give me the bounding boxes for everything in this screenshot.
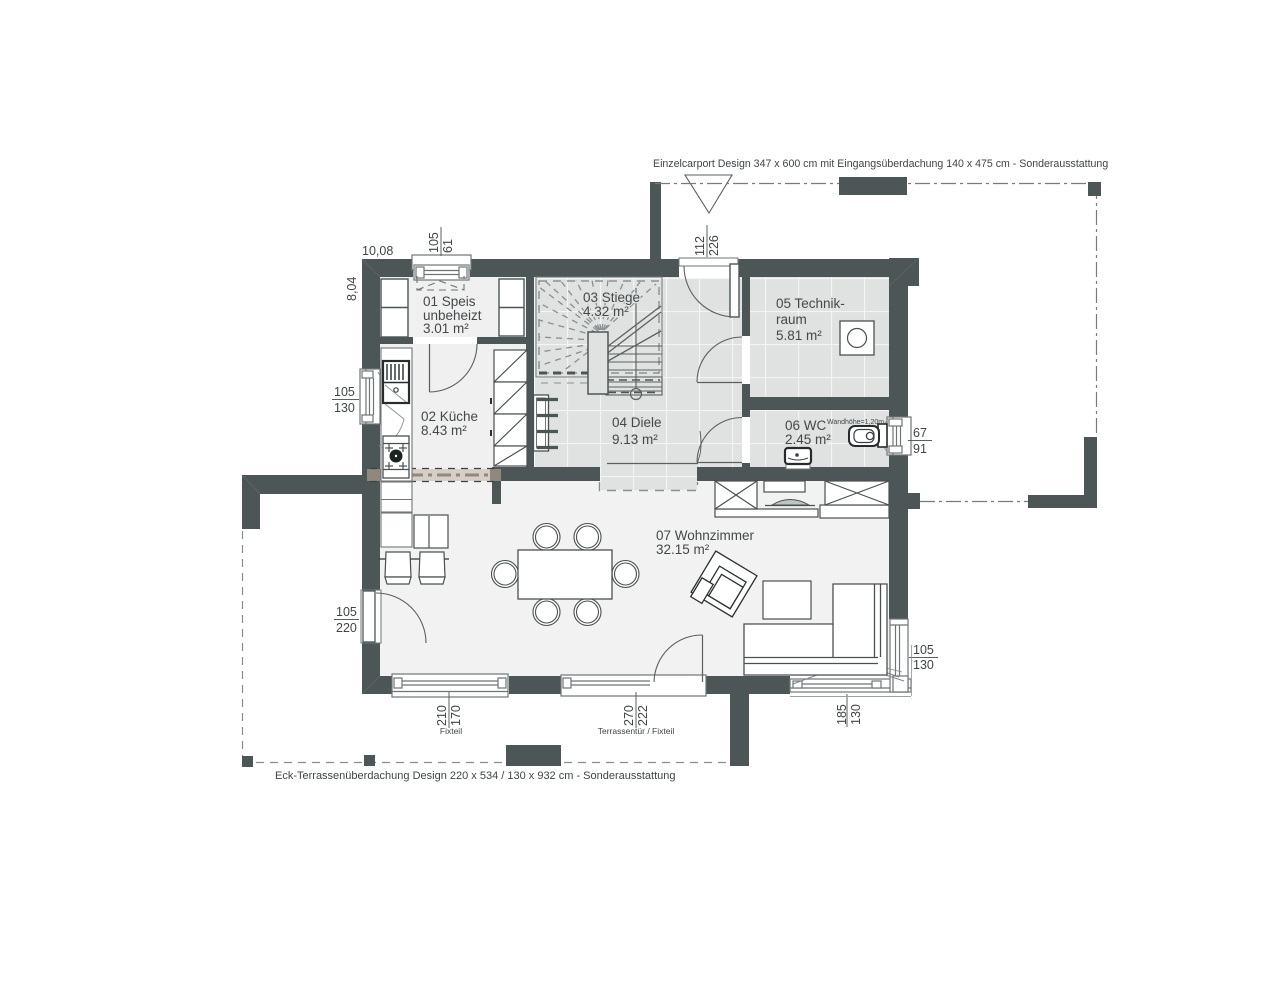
svg-text:210: 210 — [435, 705, 449, 726]
svg-text:05 Technik-: 05 Technik- — [776, 296, 845, 311]
svg-text:130: 130 — [913, 658, 934, 672]
svg-text:105: 105 — [913, 643, 934, 657]
svg-text:130: 130 — [849, 704, 863, 725]
svg-text:raum: raum — [776, 312, 807, 327]
svg-text:Terrassentür / Fixteil: Terrassentür / Fixteil — [598, 726, 675, 736]
svg-text:61: 61 — [441, 239, 455, 253]
svg-text:10,08: 10,08 — [362, 244, 393, 258]
svg-text:Wandhöhe=1,20m: Wandhöhe=1,20m — [827, 419, 884, 426]
svg-text:220: 220 — [336, 621, 357, 635]
svg-text:67: 67 — [913, 426, 927, 440]
svg-text:3.01 m²: 3.01 m² — [423, 321, 469, 336]
svg-text:9.13 m²: 9.13 m² — [612, 432, 658, 447]
svg-text:8,04: 8,04 — [345, 277, 359, 301]
svg-text:185: 185 — [835, 704, 849, 725]
svg-text:03 Stiege: 03 Stiege — [583, 290, 640, 305]
svg-text:105: 105 — [334, 385, 355, 399]
svg-text:01 Speis: 01 Speis — [423, 294, 476, 309]
svg-text:105: 105 — [427, 232, 441, 253]
svg-text:222: 222 — [636, 705, 650, 726]
svg-text:07 Wohnzimmer: 07 Wohnzimmer — [656, 528, 755, 543]
svg-text:04 Diele: 04 Diele — [612, 415, 662, 430]
svg-text:5.81 m²: 5.81 m² — [776, 328, 822, 343]
svg-text:2.45 m²: 2.45 m² — [785, 432, 831, 447]
svg-text:170: 170 — [449, 705, 463, 726]
svg-text:105: 105 — [336, 605, 357, 619]
svg-text:32.15 m²: 32.15 m² — [656, 542, 710, 557]
svg-text:Einzelcarport Design 347 x 600: Einzelcarport Design 347 x 600 cm mit Ei… — [653, 158, 1108, 170]
svg-text:226: 226 — [707, 235, 721, 256]
svg-text:91: 91 — [913, 442, 927, 456]
svg-text:8.43 m²: 8.43 m² — [421, 423, 467, 438]
svg-text:4.32 m²: 4.32 m² — [583, 304, 629, 319]
svg-text:Fixteil: Fixteil — [440, 726, 462, 736]
svg-text:Eck-Terrassenüberdachung Desig: Eck-Terrassenüberdachung Design 220 x 53… — [275, 770, 676, 782]
svg-text:270: 270 — [622, 705, 636, 726]
svg-text:130: 130 — [334, 401, 355, 415]
svg-text:112: 112 — [693, 236, 707, 256]
svg-text:06 WC: 06 WC — [785, 418, 827, 433]
svg-text:02 Küche: 02 Küche — [421, 409, 478, 424]
